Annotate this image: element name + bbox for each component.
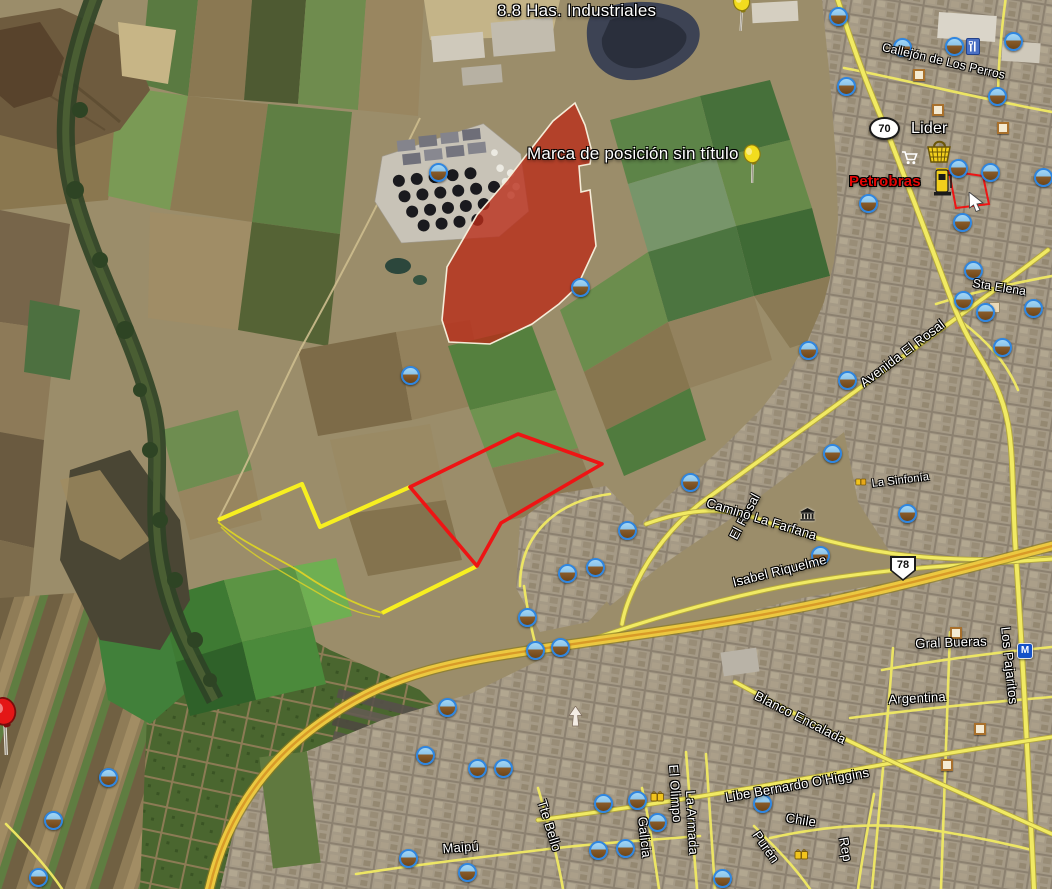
has-industriales-label[interactable]: 8.8 Has. Industriales [497,1,656,21]
map-labels-layer: 8.8 Has. IndustrialesMarca de posición s… [0,0,1052,889]
los-pajaritos-label: Los Pajaritos [998,626,1021,705]
camino-la-farfana-label: Camino La Farfana [705,495,819,543]
la-armada-label: La Armada [683,790,701,855]
galicia-label: Galicia [635,816,654,858]
blanco-encalada-label: Blanco Encalada [752,688,848,747]
puren-label: Purén [750,828,783,866]
gral-bueras-label: Gral Bueras [915,634,987,651]
la-sinfonia-label: La Sinfonía [871,471,930,490]
maipu-label: Maipú [442,838,479,856]
bernardo-ohiggins-label: Libe Bernardo O'Higgins [724,765,870,805]
lider-label[interactable]: Lider [911,120,948,138]
marca-posicion-label[interactable]: Marca de posición sin título [527,144,739,164]
chile-label: Chile [785,810,818,830]
avenida-el-rosal-label: Avenida El Rosal [857,317,947,390]
callejon-de-los-perros-label: Callejón de Los Perros [881,40,1007,82]
petrobras-label[interactable]: Petrobras [849,173,921,190]
rep-label: Rep [836,836,855,863]
tte-bello-label: Tte Bello [535,798,565,853]
sta-elena-label: Sta Elena [972,276,1027,298]
isabel-riquelme-label: Isabel Riquelme [731,552,828,590]
argentina-label: Argentina [888,689,946,707]
satellite-map-viewport[interactable]: M 7078 8.8 Has. IndustrialesMarca de pos… [0,0,1052,889]
